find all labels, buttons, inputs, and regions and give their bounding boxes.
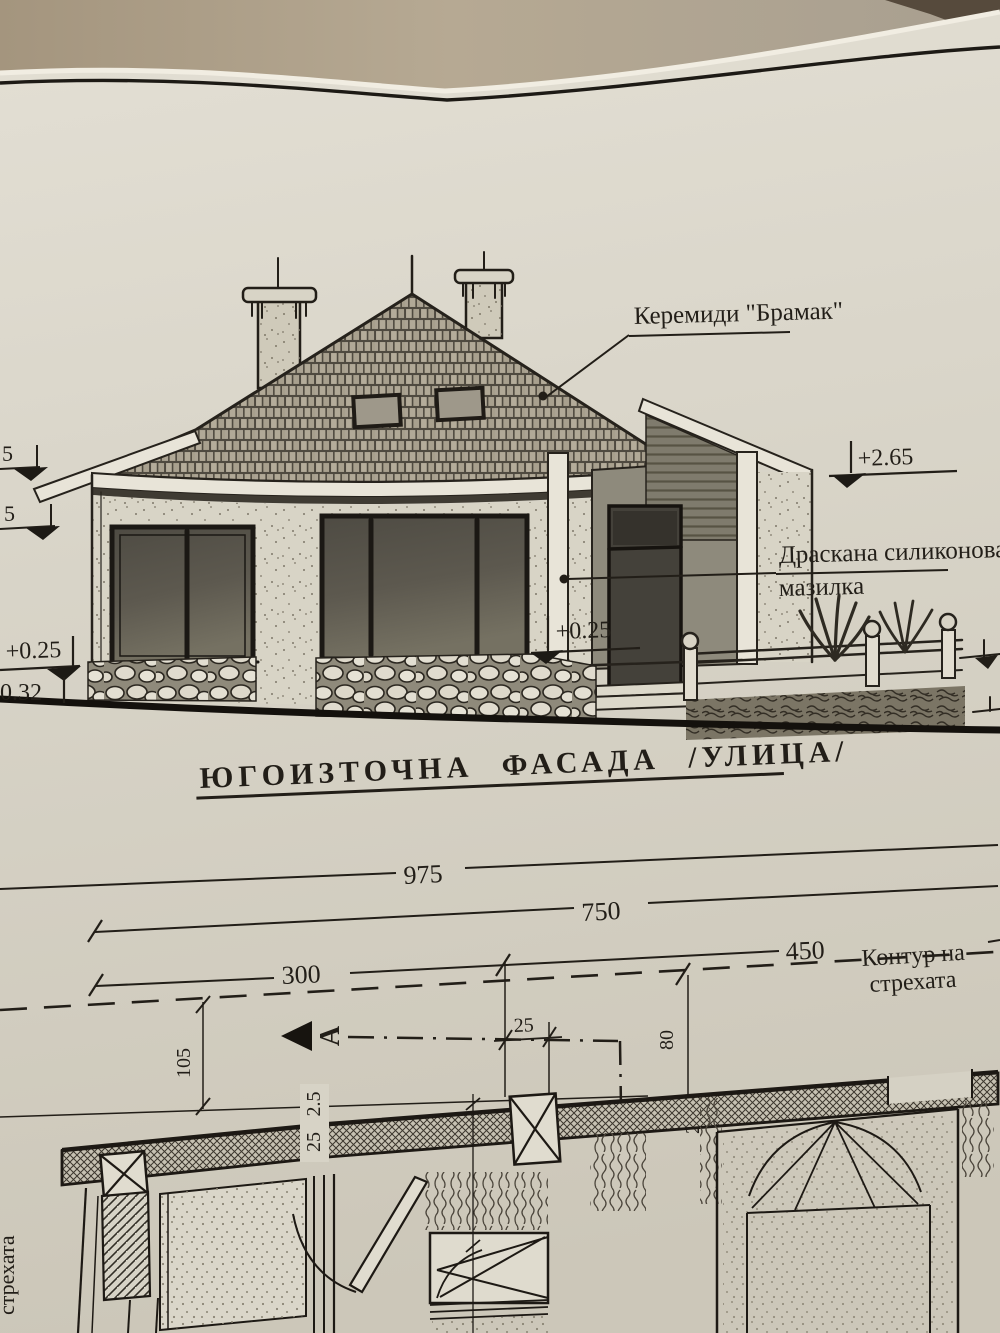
plan-column-mid (510, 1093, 561, 1164)
plan-column-left (100, 1151, 147, 1197)
plaster-label-line2: мазилка (778, 573, 864, 602)
section-letter: A (315, 1025, 346, 1046)
level-terrace-value: +0.25 (5, 637, 61, 665)
dim-750: 750 (581, 896, 621, 927)
plan-wood-zone (590, 1133, 646, 1211)
plan-room-right (717, 1109, 958, 1333)
stone-base-left (88, 657, 256, 701)
leader-dot (560, 575, 569, 584)
level-partial-upper: 5 (2, 441, 13, 466)
eaves-contour-label-2: стрехата (869, 967, 958, 998)
dim-layer-b: 25 (303, 1132, 325, 1152)
stone-base-center (316, 654, 596, 720)
entrance-steps (590, 682, 696, 710)
level-partial-lower: 5 (4, 501, 15, 526)
plaster-label-line1: Драскана силиконова (778, 536, 1000, 569)
plan-pier (102, 1192, 150, 1300)
leader-dot (539, 392, 548, 401)
level-ground-value: 0.32 (0, 680, 42, 706)
dim-80-value: 80 (656, 1030, 678, 1050)
window-left (107, 527, 258, 666)
dim-overall: 975 (403, 859, 443, 890)
dim-25-eave-value: 25 (513, 1014, 534, 1037)
porch-column-right (737, 452, 757, 664)
dim-450: 450 (785, 935, 825, 966)
entrance-door (609, 506, 681, 688)
edge-vertical-label: стрехата (0, 1235, 19, 1315)
architectural-drawing-photo: Керемиди "Брамак" Драскана силиконова ма… (0, 0, 1000, 1333)
plan-wood-zone (700, 1098, 722, 1204)
dim-layer-a: 2.5 (303, 1092, 325, 1117)
roof-tiles-label: Керемиди "Брамак" (633, 298, 843, 330)
level-entrance-value: +0.25 (555, 617, 611, 645)
plan-wood-zone (962, 1101, 994, 1177)
plan-wood-zone (424, 1172, 548, 1230)
dim-300: 300 (281, 959, 321, 990)
plan-window (430, 1233, 548, 1333)
drawing-canvas: Керемиди "Брамак" Драскана силиконова ма… (0, 0, 1000, 1333)
level-eaves-value: +2.65 (857, 444, 913, 472)
window-center (317, 516, 532, 661)
roof-window-right (436, 388, 484, 420)
dim-105-value: 105 (173, 1048, 195, 1078)
roof-window-left (353, 395, 401, 427)
